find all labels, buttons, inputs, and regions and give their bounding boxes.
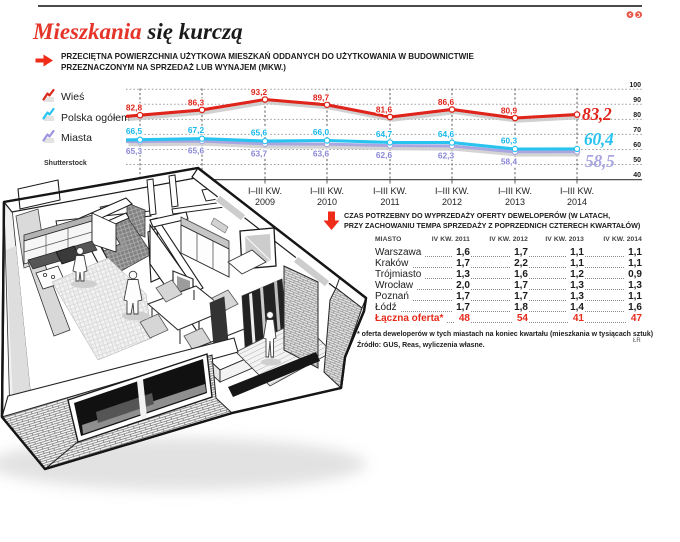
svg-text:62,6: 62,6 (376, 150, 393, 160)
svg-text:89,7: 89,7 (313, 92, 330, 102)
svg-text:60,3: 60,3 (501, 136, 518, 146)
svg-text:81,6: 81,6 (376, 105, 393, 115)
svg-text:80,9: 80,9 (501, 106, 518, 116)
svg-text:63,6: 63,6 (313, 149, 330, 159)
svg-text:93,2: 93,2 (251, 87, 268, 97)
svg-text:40: 40 (633, 172, 641, 179)
svg-text:65,6: 65,6 (188, 146, 205, 156)
svg-text:66,0: 66,0 (313, 127, 330, 137)
svg-text:58,5: 58,5 (585, 151, 615, 171)
svg-text:65,3: 65,3 (126, 146, 143, 156)
svg-text:I–III KW.: I–III KW. (560, 186, 594, 196)
svg-text:60,4: 60,4 (584, 129, 614, 149)
svg-text:50: 50 (633, 157, 641, 164)
svg-text:86,6: 86,6 (438, 97, 455, 107)
svg-text:86,3: 86,3 (188, 97, 205, 107)
svg-text:83,2: 83,2 (582, 104, 612, 124)
svg-text:62,3: 62,3 (438, 151, 455, 161)
svg-text:66,5: 66,5 (126, 126, 143, 136)
svg-text:90: 90 (633, 97, 641, 104)
svg-text:80: 80 (633, 112, 641, 119)
svg-text:I–III KW.: I–III KW. (498, 186, 532, 196)
svg-text:65,6: 65,6 (251, 128, 268, 138)
svg-text:64,7: 64,7 (376, 129, 393, 139)
svg-text:100: 100 (629, 82, 641, 89)
svg-text:67,2: 67,2 (188, 125, 205, 135)
svg-text:58,4: 58,4 (501, 156, 518, 166)
svg-text:82,8: 82,8 (126, 103, 143, 113)
svg-text:2014: 2014 (567, 197, 587, 207)
svg-text:2013: 2013 (505, 197, 525, 207)
svg-text:70: 70 (633, 127, 641, 134)
svg-text:64,6: 64,6 (438, 129, 455, 139)
svg-text:60: 60 (633, 142, 641, 149)
svg-text:63,7: 63,7 (251, 148, 268, 158)
